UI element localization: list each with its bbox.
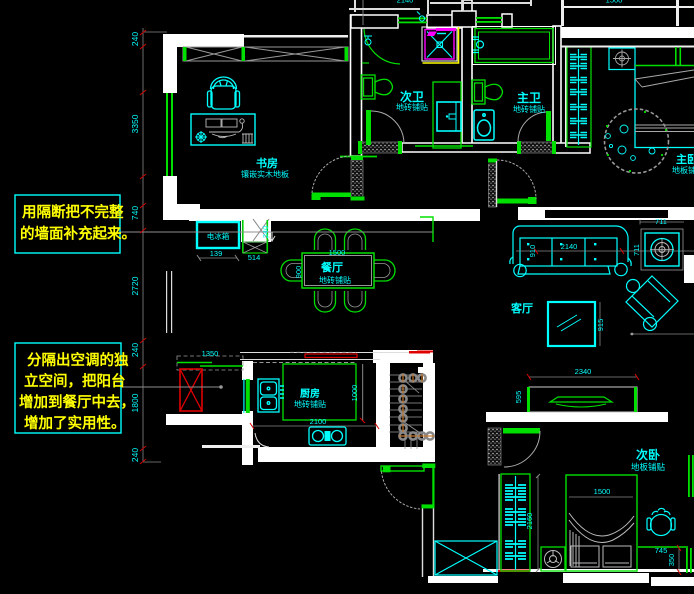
svg-text:主卫: 主卫 — [517, 90, 541, 105]
svg-text:地板铺贴: 地板铺贴 — [631, 462, 666, 472]
svg-text:1350: 1350 — [202, 349, 219, 358]
svg-text:240: 240 — [130, 343, 140, 357]
svg-text:1500: 1500 — [594, 487, 611, 496]
svg-text:711: 711 — [655, 217, 667, 226]
svg-text:711: 711 — [632, 244, 641, 256]
svg-text:350: 350 — [667, 554, 676, 567]
svg-text:的墙面补充起来。: 的墙面补充起来。 — [20, 225, 136, 243]
svg-text:1800: 1800 — [130, 393, 140, 412]
svg-text:地砖铺贴: 地砖铺贴 — [513, 104, 545, 114]
svg-text:2720: 2720 — [130, 276, 140, 295]
svg-text:地砖铺贴: 地砖铺贴 — [396, 102, 428, 112]
svg-text:次卫: 次卫 — [400, 89, 424, 104]
svg-text:2160: 2160 — [525, 513, 534, 530]
svg-text:514: 514 — [248, 253, 261, 262]
svg-text:增加到餐厅中去，: 增加到餐厅中去， — [19, 393, 135, 411]
svg-text:增加了实用性。: 增加了实用性。 — [24, 414, 126, 432]
svg-text:书房: 书房 — [256, 156, 278, 170]
svg-text:595: 595 — [514, 391, 523, 404]
svg-text:910: 910 — [528, 245, 537, 258]
svg-text:240: 240 — [130, 32, 140, 46]
svg-text:客厅: 客厅 — [510, 301, 533, 315]
svg-text:用隔断把不完整: 用隔断把不完整 — [22, 203, 124, 221]
svg-text:地砖铺贴: 地砖铺贴 — [319, 275, 351, 285]
svg-text:厨房: 厨房 — [300, 387, 320, 400]
svg-text:分隔出空调的独: 分隔出空调的独 — [27, 351, 129, 369]
svg-text:2140: 2140 — [397, 0, 414, 5]
svg-text:1500: 1500 — [329, 248, 346, 257]
svg-text:740: 740 — [130, 206, 140, 220]
svg-text:主卧: 主卧 — [676, 152, 694, 166]
svg-text:240: 240 — [261, 226, 270, 239]
svg-text:次卧: 次卧 — [636, 447, 660, 462]
svg-text:900: 900 — [294, 266, 303, 279]
svg-text:3350: 3350 — [130, 114, 140, 133]
svg-text:2140: 2140 — [561, 242, 578, 251]
svg-text:915: 915 — [596, 319, 605, 332]
svg-text:电冰箱: 电冰箱 — [207, 231, 230, 241]
svg-text:镶嵌实木地板: 镶嵌实木地板 — [241, 169, 289, 179]
svg-text:餐厅: 餐厅 — [320, 260, 343, 274]
svg-text:2340: 2340 — [575, 367, 592, 376]
svg-text:2100: 2100 — [310, 417, 327, 426]
svg-text:1500: 1500 — [606, 0, 623, 5]
svg-text:240: 240 — [130, 448, 140, 462]
svg-text:地板铺贴: 地板铺贴 — [672, 165, 694, 175]
svg-text:地砖铺贴: 地砖铺贴 — [294, 399, 326, 409]
svg-text:立空间，把阳台: 立空间，把阳台 — [24, 372, 126, 390]
svg-text:139: 139 — [210, 249, 223, 258]
svg-text:745: 745 — [655, 546, 668, 555]
svg-text:1000: 1000 — [350, 385, 359, 402]
